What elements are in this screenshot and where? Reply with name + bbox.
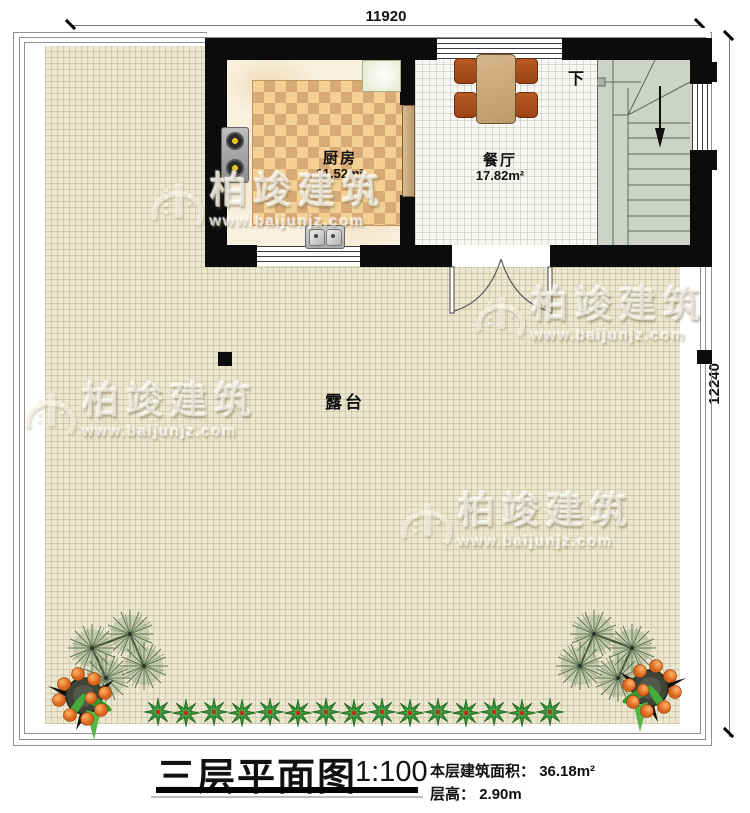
watermark-brand: 柏竣建筑 (210, 172, 386, 211)
wall-pilaster (690, 62, 717, 82)
terrace-label: 露台 (305, 388, 385, 413)
dining-area-label: 17.82m² (460, 168, 540, 183)
watermark: 柏竣建筑 www.baijunjz.com (148, 172, 386, 238)
watermark-brand: 柏竣建筑 (531, 286, 707, 325)
dining-table-icon (476, 54, 516, 124)
watermark: 柏竣建筑 www.baijunjz.com (398, 492, 634, 556)
floor-height-value: 2.90m (479, 786, 522, 803)
wall-bottom (360, 245, 452, 267)
wall-top (205, 38, 437, 60)
floor-area-line: 本层建筑面积： 36.18m² (430, 760, 595, 781)
terrace-column (697, 350, 712, 364)
watermark-brand: 柏竣建筑 (82, 382, 258, 421)
dining-label: 餐厅 (460, 149, 540, 170)
title-underline (156, 787, 418, 793)
dining-chair-icon (515, 92, 538, 118)
floor-area-label: 本层建筑面积： (430, 763, 535, 780)
watermark-brand: 柏竣建筑 (458, 492, 634, 531)
floor-height-label: 层高： (430, 786, 475, 803)
watermark: 柏竣建筑 www.baijunjz.com (22, 382, 258, 446)
window-kitchen-bottom (257, 246, 360, 266)
wall-bottom (550, 245, 712, 267)
watermark-logo-icon (148, 172, 206, 238)
watermark-url: www.baijunjz.com (82, 423, 258, 440)
watermark-logo-icon (473, 286, 527, 348)
watermark-logo-icon (22, 382, 78, 446)
terrace-plants (0, 590, 750, 760)
wall-pilaster (690, 150, 717, 170)
stairs-down-arrow-icon (655, 86, 665, 148)
dining-chair-icon (454, 92, 477, 118)
floor-plan-canvas: 11920 12240 露台 (0, 0, 750, 813)
watermark: 柏竣建筑 www.baijunjz.com (473, 286, 707, 348)
staircase-icon (597, 48, 697, 247)
spacer (207, 28, 710, 37)
watermark-url: www.baijunjz.com (210, 213, 386, 230)
watermark-url: www.baijunjz.com (458, 533, 634, 550)
top-dimension-label: 11920 (348, 8, 424, 25)
kitchen-door-leaf (402, 105, 415, 197)
shrub-row (144, 698, 564, 727)
kitchen-label: 厨房 (300, 147, 380, 168)
title-underline-shadow (151, 796, 423, 798)
watermark-url: www.baijunjz.com (531, 327, 707, 344)
top-dimension-line (70, 25, 702, 26)
wall-bottom (205, 245, 257, 267)
fridge-counter-icon (362, 60, 401, 92)
plan-scale: 1:100 (355, 756, 428, 789)
wall-kitchen-dining (400, 195, 415, 247)
watermark-logo-icon (398, 492, 454, 556)
window-stairs-right (692, 84, 711, 150)
floor-area-value: 36.18m² (539, 763, 595, 780)
dining-chair-icon (515, 58, 538, 84)
terrace-column (218, 352, 232, 366)
wall-kitchen-dining (400, 58, 415, 105)
dining-chair-icon (454, 58, 477, 84)
stairs-down-label: 下 (566, 65, 586, 89)
floor-height-line: 层高： 2.90m (430, 783, 522, 804)
